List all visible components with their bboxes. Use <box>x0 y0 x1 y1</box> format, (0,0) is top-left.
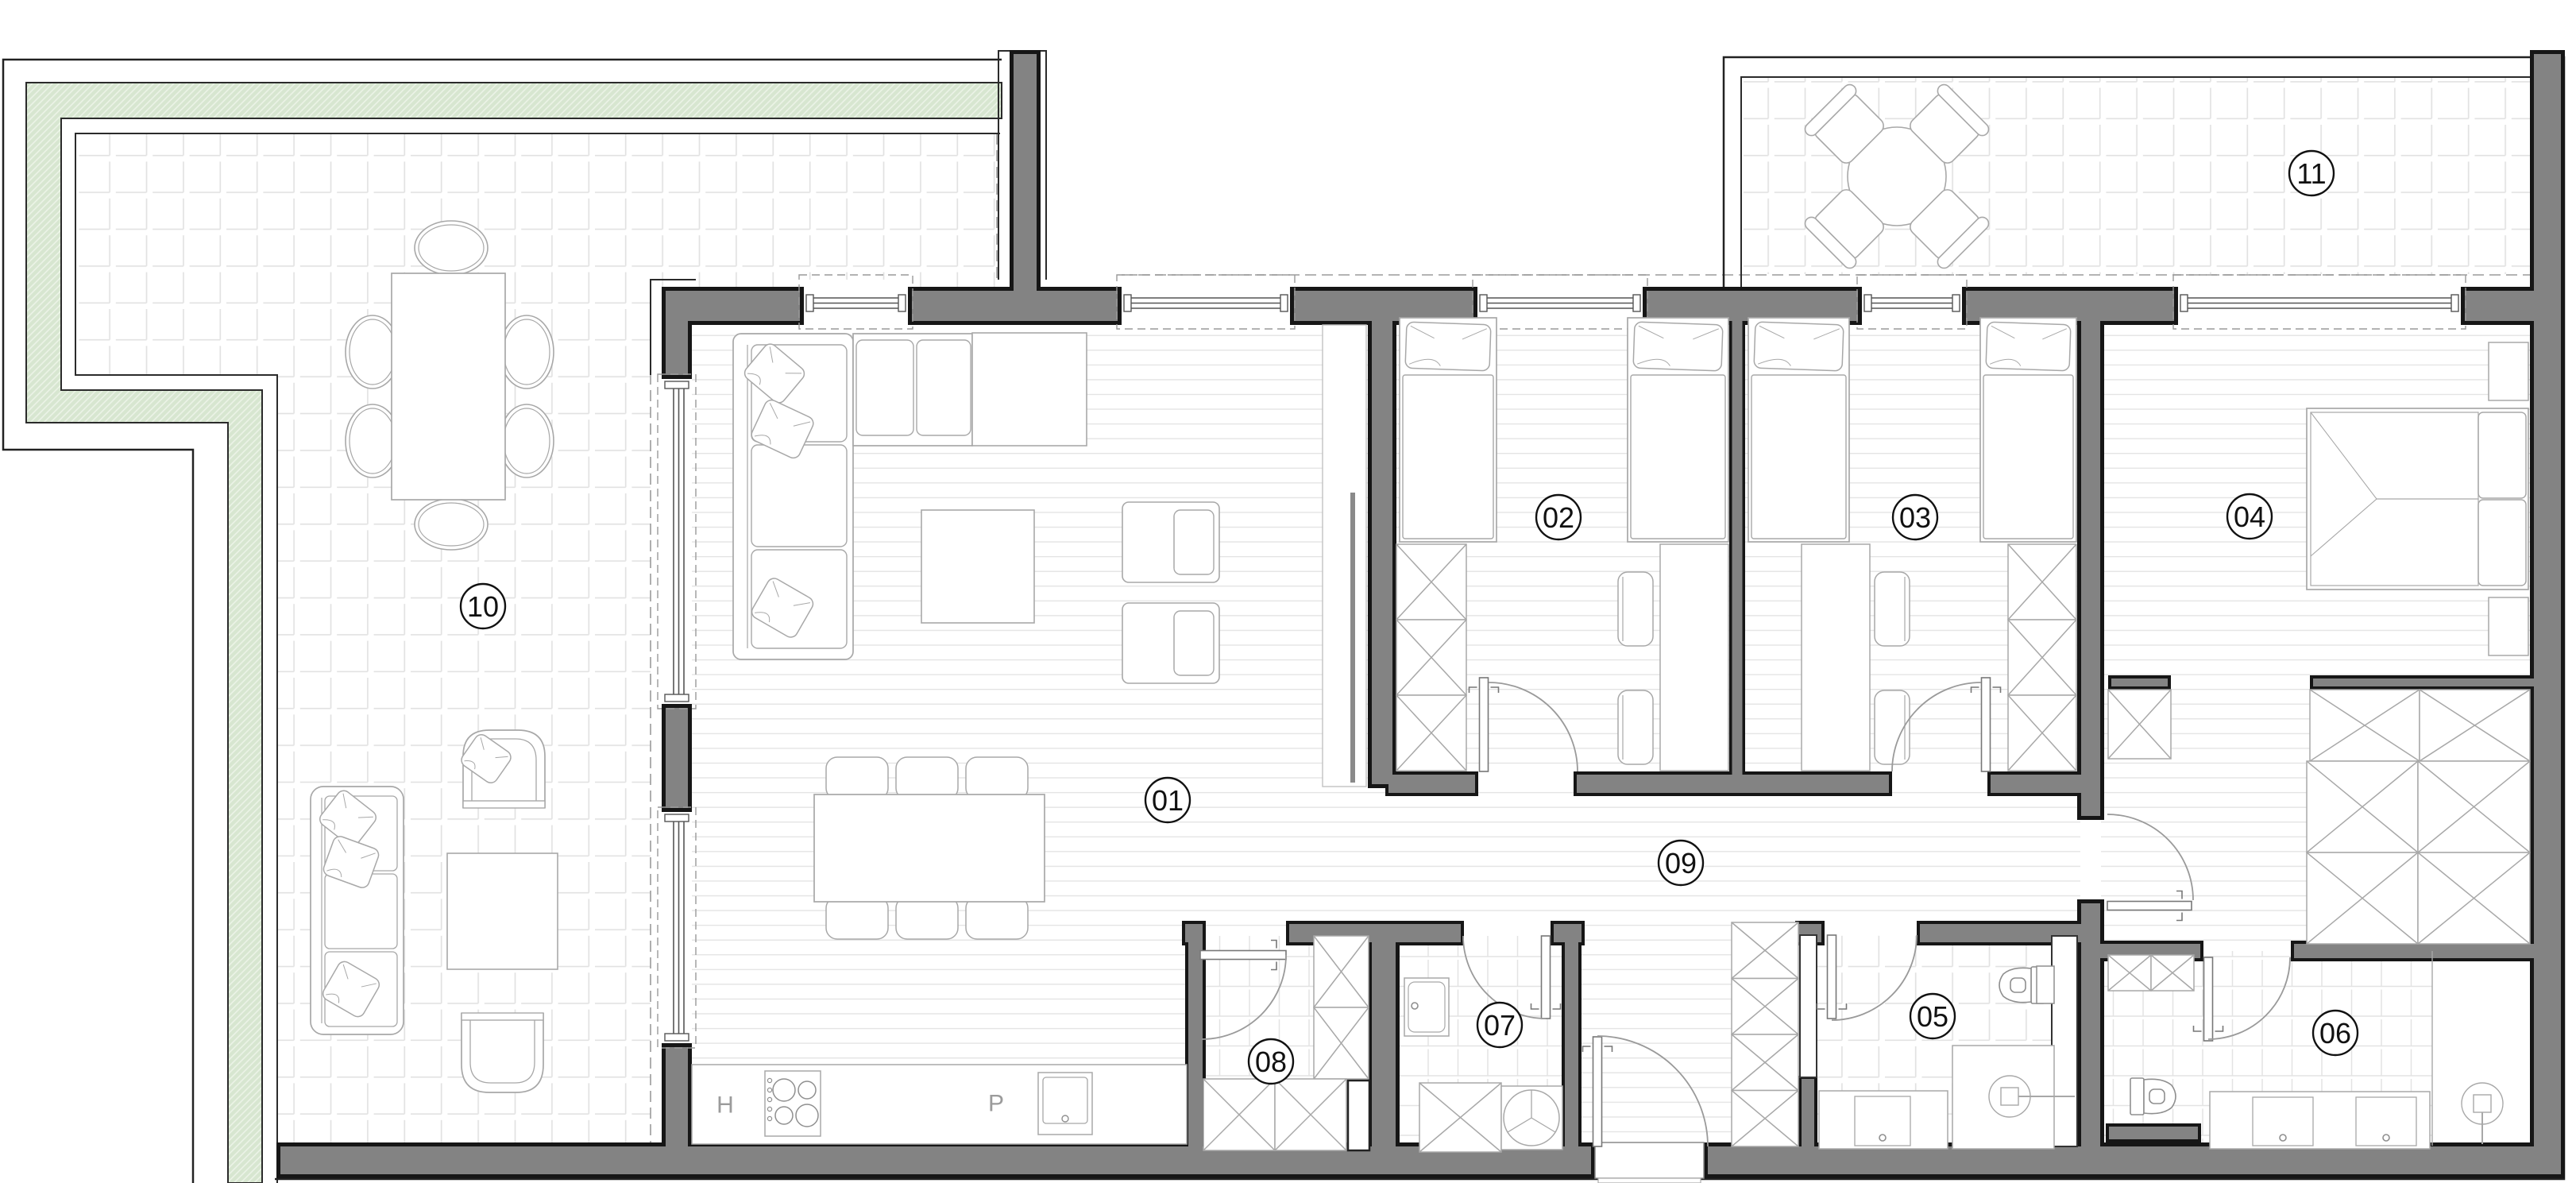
svg-text:06: 06 <box>2319 1017 2351 1050</box>
svg-text:07: 07 <box>1484 1009 1516 1042</box>
svg-text:11: 11 <box>2296 157 2326 190</box>
svg-text:01: 01 <box>1152 784 1184 817</box>
svg-text:05: 05 <box>1917 1000 1948 1033</box>
svg-text:03: 03 <box>1899 501 1931 534</box>
svg-text:08: 08 <box>1255 1046 1287 1078</box>
svg-text:04: 04 <box>2234 501 2265 533</box>
svg-text:10: 10 <box>467 590 499 623</box>
svg-text:09: 09 <box>1665 847 1697 880</box>
svg-text:P: P <box>988 1091 1004 1117</box>
svg-text:H: H <box>716 1092 734 1119</box>
svg-text:02: 02 <box>1543 501 1574 534</box>
